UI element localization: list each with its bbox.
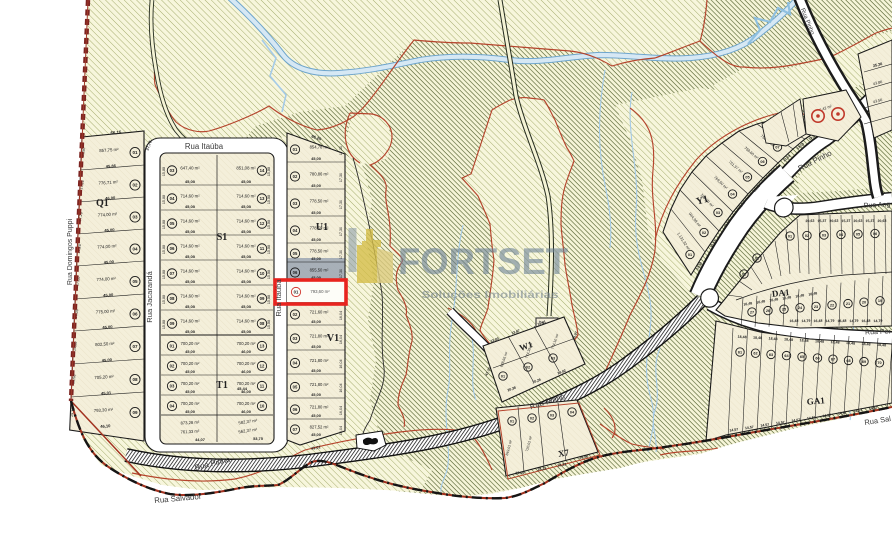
- svg-text:04: 04: [170, 404, 175, 409]
- svg-text:16,48: 16,48: [837, 319, 846, 323]
- svg-text:45,00: 45,00: [311, 156, 322, 161]
- svg-text:22: 22: [830, 303, 834, 307]
- svg-text:45,00: 45,00: [185, 204, 196, 209]
- svg-text:03: 03: [551, 356, 555, 360]
- svg-text:700,20 m²: 700,20 m²: [181, 341, 200, 346]
- svg-text:15,37: 15,37: [817, 219, 826, 223]
- svg-text:16,04: 16,04: [339, 359, 343, 368]
- svg-text:20,63: 20,63: [829, 219, 838, 223]
- svg-text:16,48: 16,48: [861, 319, 870, 323]
- svg-text:45,00: 45,00: [185, 369, 196, 374]
- svg-text:03: 03: [170, 384, 175, 389]
- svg-text:700,20 m²: 700,20 m²: [181, 361, 200, 366]
- svg-text:45,00: 45,00: [311, 183, 322, 188]
- svg-text:714,60 m²: 714,60 m²: [236, 269, 256, 274]
- svg-text:Soluções Imobiliárias: Soluções Imobiliárias: [422, 289, 559, 301]
- svg-text:07: 07: [132, 344, 138, 349]
- svg-text:09: 09: [260, 296, 265, 301]
- svg-text:U1: U1: [316, 222, 328, 233]
- svg-text:01: 01: [293, 147, 298, 152]
- svg-text:20: 20: [862, 301, 866, 305]
- svg-text:14: 14: [260, 168, 265, 173]
- svg-text:15,88: 15,88: [162, 270, 166, 279]
- svg-text:873,28 m²: 873,28 m²: [180, 419, 200, 425]
- svg-text:06: 06: [760, 160, 764, 164]
- svg-text:05: 05: [856, 232, 860, 236]
- svg-text:15,88: 15,88: [162, 295, 166, 304]
- svg-text:03: 03: [132, 215, 138, 220]
- svg-text:18,48: 18,48: [799, 338, 808, 343]
- svg-text:23: 23: [814, 305, 818, 309]
- svg-text:15,88: 15,88: [162, 320, 166, 329]
- svg-text:01: 01: [755, 256, 759, 260]
- svg-text:778,50 m²: 778,50 m²: [310, 199, 329, 204]
- svg-text:03: 03: [550, 413, 554, 417]
- svg-text:721,80 m²: 721,80 m²: [310, 382, 329, 387]
- svg-text:45,00: 45,00: [185, 254, 196, 259]
- svg-text:66: 66: [815, 356, 819, 360]
- svg-text:17,30: 17,30: [339, 250, 343, 259]
- svg-text:15,88: 15,88: [267, 295, 271, 304]
- svg-text:45,00: 45,00: [241, 254, 252, 259]
- svg-text:647,40 m²: 647,40 m²: [180, 166, 200, 171]
- svg-text:14,79: 14,79: [849, 319, 858, 323]
- svg-text:02: 02: [805, 234, 809, 238]
- svg-text:778,50 m²: 778,50 m²: [310, 249, 329, 254]
- svg-text:Rua Per: Rua Per: [865, 329, 892, 337]
- svg-text:07: 07: [293, 427, 298, 432]
- svg-text:18,48: 18,48: [846, 341, 855, 346]
- svg-text:16,04: 16,04: [339, 311, 343, 320]
- svg-text:02: 02: [742, 272, 746, 276]
- svg-text:45,00: 45,00: [241, 179, 252, 184]
- svg-text:06: 06: [873, 232, 877, 236]
- svg-text:15,88: 15,88: [267, 220, 271, 229]
- svg-text:63: 63: [769, 353, 773, 357]
- svg-text:08: 08: [170, 296, 175, 301]
- svg-text:45,00: 45,00: [311, 368, 322, 373]
- svg-text:10: 10: [260, 271, 265, 276]
- svg-text:18,48: 18,48: [861, 342, 870, 347]
- svg-text:06: 06: [293, 407, 298, 412]
- svg-text:45,00: 45,00: [311, 413, 322, 418]
- svg-text:09: 09: [170, 321, 175, 326]
- svg-text:05: 05: [293, 251, 298, 256]
- svg-text:GA1: GA1: [806, 395, 825, 407]
- svg-text:700,20 m²: 700,20 m²: [181, 381, 200, 386]
- svg-text:714,60 m²: 714,60 m²: [236, 319, 256, 324]
- svg-text:20,63: 20,63: [853, 219, 862, 223]
- svg-text:45,00: 45,00: [311, 256, 322, 261]
- svg-text:15,88: 15,88: [267, 167, 271, 176]
- svg-text:01: 01: [170, 344, 175, 349]
- svg-text:08: 08: [260, 321, 265, 326]
- svg-text:44,07: 44,07: [195, 437, 206, 442]
- svg-text:18,48: 18,48: [768, 336, 777, 341]
- svg-text:45,00: 45,00: [311, 319, 322, 324]
- svg-text:17,30: 17,30: [339, 146, 343, 155]
- svg-text:15,37: 15,37: [865, 219, 874, 223]
- svg-text:03: 03: [293, 336, 298, 341]
- svg-text:18,48: 18,48: [784, 337, 793, 342]
- svg-text:02: 02: [702, 231, 706, 235]
- svg-text:20,63: 20,63: [877, 219, 886, 223]
- svg-text:27: 27: [750, 310, 754, 314]
- svg-text:721,80 m²: 721,80 m²: [310, 358, 329, 363]
- svg-text:03: 03: [822, 233, 826, 237]
- svg-text:04: 04: [132, 247, 138, 252]
- svg-text:06: 06: [293, 270, 298, 275]
- svg-text:02: 02: [526, 365, 530, 369]
- svg-text:12: 12: [260, 221, 265, 226]
- svg-text:17,30: 17,30: [339, 173, 343, 182]
- svg-text:04: 04: [170, 196, 175, 201]
- svg-text:11: 11: [260, 246, 265, 251]
- svg-text:05: 05: [132, 279, 138, 284]
- svg-text:714,60 m²: 714,60 m²: [180, 269, 200, 274]
- svg-text:45,00: 45,00: [311, 344, 322, 349]
- svg-text:53,75: 53,75: [253, 436, 264, 441]
- svg-text:01: 01: [788, 234, 792, 238]
- svg-text:45,00: 45,00: [311, 237, 322, 242]
- svg-text:20,63: 20,63: [805, 219, 814, 223]
- svg-text:07: 07: [775, 145, 779, 149]
- svg-text:Rua Itaúba: Rua Itaúba: [274, 279, 283, 317]
- svg-text:13: 13: [260, 344, 265, 349]
- svg-text:19: 19: [878, 299, 882, 303]
- svg-text:714,60 m²: 714,60 m²: [236, 194, 256, 199]
- svg-text:45,00: 45,00: [241, 329, 252, 334]
- svg-text:714,60 m²: 714,60 m²: [180, 244, 200, 249]
- svg-text:66,15: 66,15: [110, 130, 122, 136]
- svg-text:09: 09: [132, 410, 138, 415]
- svg-text:15,88: 15,88: [162, 167, 166, 176]
- svg-text:17,30: 17,30: [339, 200, 343, 209]
- svg-text:20,05: 20,05: [515, 471, 524, 476]
- svg-text:45,00: 45,00: [185, 279, 196, 284]
- svg-text:18,48: 18,48: [753, 336, 762, 341]
- svg-text:46,00: 46,00: [241, 369, 252, 374]
- svg-text:10: 10: [260, 404, 265, 409]
- svg-text:16,04: 16,04: [339, 406, 343, 415]
- svg-text:714,60 m²: 714,60 m²: [180, 194, 200, 199]
- svg-text:45,44: 45,44: [237, 386, 248, 391]
- svg-text:X7: X7: [557, 447, 570, 459]
- svg-text:46,00: 46,00: [241, 349, 252, 354]
- svg-text:45,00: 45,00: [311, 432, 322, 437]
- svg-text:67: 67: [831, 358, 835, 362]
- svg-text:02: 02: [530, 416, 534, 420]
- svg-text:61: 61: [738, 350, 742, 354]
- svg-text:Rua Itaúba: Rua Itaúba: [185, 142, 224, 151]
- svg-text:18,48: 18,48: [830, 340, 839, 345]
- svg-text:714,60 m²: 714,60 m²: [236, 244, 256, 249]
- svg-text:827,52 m²: 827,52 m²: [310, 425, 329, 430]
- svg-text:15,88: 15,88: [267, 195, 271, 204]
- svg-text:793,60 m²: 793,60 m²: [310, 289, 330, 294]
- svg-text:14,79: 14,79: [825, 319, 834, 323]
- svg-text:14,79: 14,79: [873, 319, 882, 323]
- svg-text:08: 08: [132, 377, 138, 382]
- svg-text:07: 07: [170, 271, 175, 276]
- svg-text:15,88: 15,88: [162, 195, 166, 204]
- svg-text:714,60 m²: 714,60 m²: [236, 219, 256, 224]
- svg-text:700,20 m²: 700,20 m²: [181, 401, 200, 406]
- svg-text:714,60 m²: 714,60 m²: [180, 319, 200, 324]
- svg-text:16,04: 16,04: [339, 383, 343, 392]
- svg-text:03: 03: [293, 201, 298, 206]
- svg-text:45,00: 45,00: [185, 409, 196, 414]
- svg-text:16,04: 16,04: [339, 335, 343, 344]
- svg-text:714,60 m²: 714,60 m²: [180, 294, 200, 299]
- svg-text:45,00: 45,00: [185, 329, 196, 334]
- svg-text:01: 01: [132, 150, 138, 155]
- svg-text:70: 70: [877, 361, 881, 365]
- svg-text:780,86 m²: 780,86 m²: [310, 172, 329, 177]
- svg-text:26: 26: [766, 309, 770, 313]
- svg-text:62: 62: [753, 352, 757, 356]
- svg-text:05: 05: [745, 175, 749, 179]
- svg-text:700,20 m²: 700,20 m²: [237, 341, 256, 346]
- svg-text:65: 65: [800, 355, 804, 359]
- svg-text:45,00: 45,00: [185, 229, 196, 234]
- svg-text:13: 13: [260, 196, 265, 201]
- svg-text:03: 03: [170, 168, 175, 173]
- svg-text:V1: V1: [327, 333, 339, 344]
- svg-text:45,00: 45,00: [241, 229, 252, 234]
- svg-text:Rua Jacarandá: Rua Jacarandá: [145, 270, 154, 322]
- svg-text:Q1: Q1: [96, 198, 109, 209]
- svg-text:68: 68: [846, 359, 850, 363]
- svg-text:16,04: 16,04: [339, 426, 343, 435]
- svg-text:45,00: 45,00: [311, 392, 322, 397]
- svg-text:46,00: 46,00: [241, 409, 252, 414]
- svg-text:761,33 m²: 761,33 m²: [180, 428, 200, 434]
- svg-text:S1: S1: [217, 232, 228, 243]
- svg-text:18,48: 18,48: [877, 343, 886, 348]
- svg-text:15,88: 15,88: [267, 320, 271, 329]
- svg-text:06: 06: [170, 246, 175, 251]
- svg-text:01: 01: [510, 419, 514, 423]
- svg-text:45,00: 45,00: [311, 210, 322, 215]
- svg-text:15,37: 15,37: [841, 219, 850, 223]
- svg-text:721,80 m²: 721,80 m²: [310, 405, 329, 410]
- svg-text:18,48: 18,48: [815, 339, 824, 344]
- svg-text:12: 12: [260, 364, 265, 369]
- svg-text:01: 01: [501, 374, 505, 378]
- svg-text:17,30: 17,30: [339, 269, 343, 278]
- svg-text:Rua Ang: Rua Ang: [863, 201, 890, 209]
- svg-text:45,00: 45,00: [185, 304, 196, 309]
- svg-text:21: 21: [846, 302, 850, 306]
- svg-text:18,48: 18,48: [737, 335, 746, 340]
- svg-text:02: 02: [293, 312, 298, 317]
- svg-text:854,78 m²: 854,78 m²: [310, 145, 329, 150]
- svg-text:25: 25: [782, 308, 786, 312]
- svg-text:11: 11: [260, 384, 265, 389]
- svg-text:851,08 m²: 851,08 m²: [236, 166, 256, 171]
- svg-text:04: 04: [293, 228, 298, 233]
- svg-text:02: 02: [132, 183, 138, 188]
- svg-text:16,48: 16,48: [789, 319, 798, 323]
- svg-text:01: 01: [688, 253, 692, 257]
- svg-text:Rua Domingos Puppi: Rua Domingos Puppi: [67, 218, 74, 285]
- svg-text:69: 69: [862, 360, 866, 364]
- svg-text:700,20 m²: 700,20 m²: [237, 361, 256, 366]
- svg-text:T1: T1: [216, 380, 228, 391]
- svg-text:02: 02: [170, 364, 175, 369]
- svg-text:45,00: 45,00: [241, 204, 252, 209]
- svg-text:06: 06: [132, 312, 138, 317]
- svg-text:721,60 m²: 721,60 m²: [310, 310, 329, 315]
- svg-text:05: 05: [170, 221, 175, 226]
- svg-text:02: 02: [293, 174, 298, 179]
- svg-text:714,60 m²: 714,60 m²: [180, 219, 200, 224]
- svg-text:45,00: 45,00: [241, 279, 252, 284]
- svg-text:15,88: 15,88: [267, 245, 271, 254]
- svg-text:04: 04: [293, 361, 298, 366]
- svg-text:14,79: 14,79: [801, 319, 810, 323]
- svg-text:700,20 m²: 700,20 m²: [237, 401, 256, 406]
- svg-text:46,10: 46,10: [100, 423, 111, 429]
- svg-text:15,88: 15,88: [267, 270, 271, 279]
- svg-text:714,60 m²: 714,60 m²: [236, 294, 256, 299]
- svg-text:FORTSET: FORTSET: [398, 241, 568, 282]
- svg-text:17,30: 17,30: [339, 227, 343, 236]
- svg-text:15,88: 15,88: [162, 220, 166, 229]
- svg-text:45,00: 45,00: [241, 304, 252, 309]
- svg-text:03: 03: [716, 211, 720, 215]
- svg-text:45,00: 45,00: [185, 179, 196, 184]
- svg-text:855,50 m²: 855,50 m²: [310, 268, 329, 273]
- svg-text:05: 05: [293, 385, 298, 390]
- svg-text:45,00: 45,00: [185, 349, 196, 354]
- svg-text:01: 01: [294, 290, 299, 295]
- svg-text:15,88: 15,88: [162, 245, 166, 254]
- svg-text:16,48: 16,48: [813, 319, 822, 323]
- svg-text:45,00: 45,00: [185, 389, 196, 394]
